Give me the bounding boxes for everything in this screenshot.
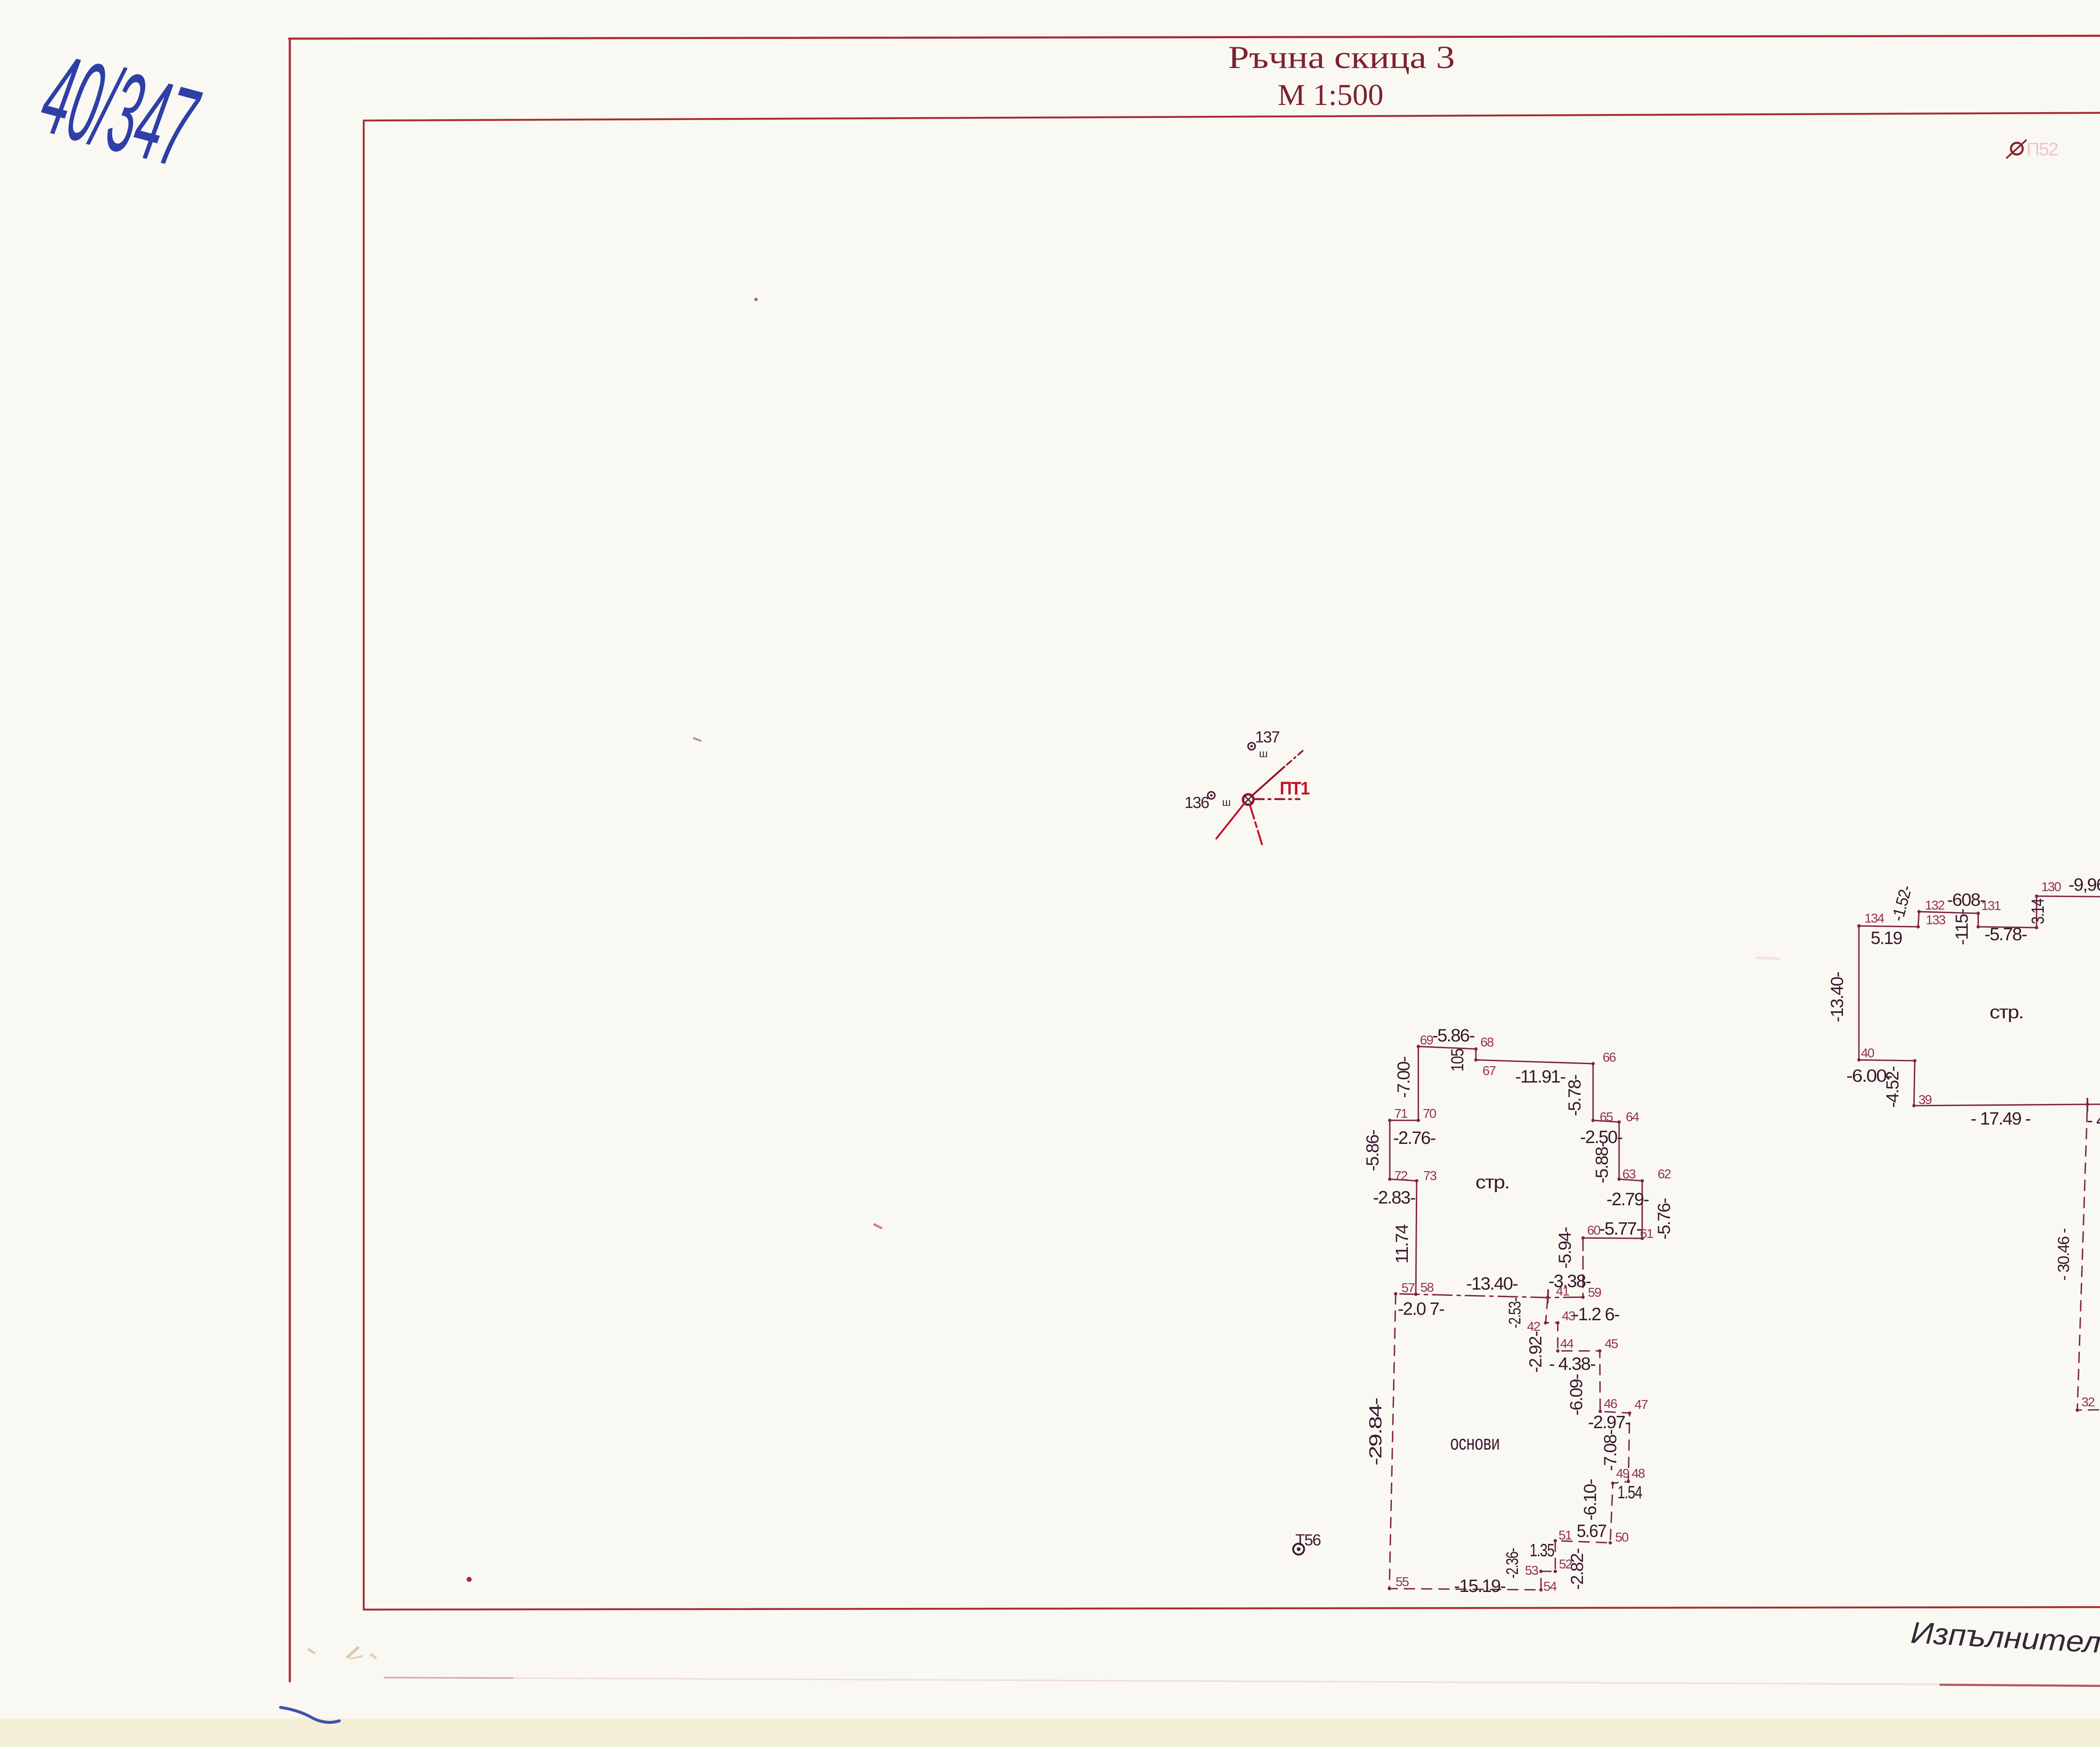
svg-text:-1.2 6-: -1.2 6- xyxy=(1573,1304,1620,1324)
svg-text:3.14: 3.14 xyxy=(2028,899,2047,924)
svg-text:-608-: -608- xyxy=(1947,890,1985,910)
svg-text:-5.88-: -5.88- xyxy=(1592,1142,1612,1183)
svg-text:-4.52-: -4.52- xyxy=(1882,1066,1902,1108)
svg-text:42: 42 xyxy=(1527,1319,1540,1334)
svg-text:130: 130 xyxy=(2041,879,2061,894)
svg-text:5.67: 5.67 xyxy=(1577,1521,1606,1541)
svg-text:-5.78-: -5.78- xyxy=(1984,924,2027,944)
svg-text:стр.: стр. xyxy=(1990,1002,2023,1023)
svg-text:Т56: Т56 xyxy=(1295,1531,1320,1549)
svg-text:69: 69 xyxy=(1420,1033,1433,1047)
svg-text:64: 64 xyxy=(1626,1109,1639,1124)
svg-text:136: 136 xyxy=(1184,794,1209,812)
svg-text:-2.36-: -2.36- xyxy=(1503,1548,1522,1579)
svg-text:53: 53 xyxy=(1525,1563,1538,1578)
svg-text:51: 51 xyxy=(1559,1528,1572,1542)
svg-text:61: 61 xyxy=(1640,1226,1653,1241)
svg-text:5.19: 5.19 xyxy=(1871,928,1902,948)
svg-text:132: 132 xyxy=(1925,898,1944,913)
svg-text:-5.86-: -5.86- xyxy=(1432,1025,1475,1046)
svg-text:-6.10-: -6.10- xyxy=(1580,1479,1600,1521)
svg-text:-13.40-: -13.40- xyxy=(1827,972,1847,1022)
svg-text:- 4.59-: - 4.59- xyxy=(2087,1110,2100,1130)
svg-text:-7.00-: -7.00- xyxy=(1394,1057,1413,1098)
svg-text:-5.94-: -5.94- xyxy=(1555,1227,1575,1269)
svg-text:стр.: стр. xyxy=(1475,1172,1509,1193)
svg-text:62: 62 xyxy=(1658,1167,1671,1181)
svg-text:- 4.38-: - 4.38- xyxy=(1549,1354,1596,1374)
svg-text:52: 52 xyxy=(1559,1557,1572,1571)
svg-text:54: 54 xyxy=(1543,1579,1557,1594)
svg-text:137: 137 xyxy=(1255,729,1279,746)
svg-text:основи: основи xyxy=(1450,1432,1500,1454)
svg-text:-2.83-: -2.83- xyxy=(1373,1188,1415,1208)
svg-text:-2.97-: -2.97- xyxy=(1588,1412,1630,1432)
svg-text:11.74: 11.74 xyxy=(1392,1224,1412,1264)
svg-text:М 1:500: М 1:500 xyxy=(1278,78,1383,112)
svg-text:ш: ш xyxy=(1259,747,1268,760)
svg-text:-115-: -115- xyxy=(1952,909,1971,945)
svg-text:-29.84-: -29.84- xyxy=(1365,1398,1385,1466)
svg-text:-2.53-: -2.53- xyxy=(1506,1298,1524,1328)
svg-text:-7.08-: -7.08- xyxy=(1600,1429,1620,1471)
svg-text:-5.77-: -5.77- xyxy=(1599,1219,1642,1239)
svg-text:-2.76-: -2.76- xyxy=(1393,1128,1436,1148)
svg-text:59: 59 xyxy=(1588,1285,1601,1300)
svg-text:45: 45 xyxy=(1605,1336,1618,1351)
svg-text:-5.78-: -5.78- xyxy=(1564,1075,1584,1116)
svg-text:-5.76-: -5.76- xyxy=(1654,1198,1674,1240)
svg-text:73: 73 xyxy=(1423,1168,1436,1183)
svg-text:1.35: 1.35 xyxy=(1530,1540,1554,1560)
svg-text:70: 70 xyxy=(1423,1106,1436,1121)
svg-text:- 30.46 -: - 30.46 - xyxy=(2055,1229,2073,1281)
svg-text:63: 63 xyxy=(1622,1167,1635,1181)
svg-text:67: 67 xyxy=(1483,1063,1496,1078)
svg-text:50: 50 xyxy=(1615,1530,1629,1544)
svg-text:-2.92-: -2.92- xyxy=(1525,1331,1545,1373)
svg-text:131: 131 xyxy=(1981,898,2000,913)
svg-text:65: 65 xyxy=(1600,1109,1613,1124)
svg-text:46: 46 xyxy=(1604,1396,1617,1411)
svg-text:71: 71 xyxy=(1394,1106,1407,1121)
svg-text:Ръчна скица 3: Ръчна скица 3 xyxy=(1228,40,1455,75)
svg-text:72: 72 xyxy=(1394,1168,1407,1183)
svg-text:133: 133 xyxy=(1926,913,1945,927)
svg-text:-3.38-: -3.38- xyxy=(1549,1271,1591,1291)
svg-text:-2.79-: -2.79- xyxy=(1606,1189,1649,1209)
svg-text:1.54: 1.54 xyxy=(1617,1482,1642,1503)
svg-text:55: 55 xyxy=(1396,1574,1409,1589)
svg-text:47: 47 xyxy=(1635,1397,1648,1412)
svg-text:-5.86-: -5.86- xyxy=(1362,1130,1382,1171)
svg-text:44: 44 xyxy=(1560,1336,1574,1351)
svg-text:П52: П52 xyxy=(2026,139,2058,160)
svg-text:105: 105 xyxy=(1447,1049,1467,1072)
svg-text:58: 58 xyxy=(1420,1280,1433,1295)
svg-text:-15.19-: -15.19- xyxy=(1454,1576,1506,1596)
svg-text:32: 32 xyxy=(2082,1395,2095,1409)
svg-text:39: 39 xyxy=(1919,1092,1932,1107)
svg-text:ш: ш xyxy=(1222,796,1231,808)
svg-text:-2.0 7-: -2.0 7- xyxy=(1398,1299,1444,1319)
svg-text:-13.40-: -13.40- xyxy=(1466,1274,1518,1294)
svg-text:60: 60 xyxy=(1587,1223,1601,1238)
svg-text:49: 49 xyxy=(1616,1466,1629,1481)
svg-text:134: 134 xyxy=(1864,911,1884,926)
svg-text:66: 66 xyxy=(1603,1050,1616,1065)
svg-text:ПТ1: ПТ1 xyxy=(1280,778,1310,799)
svg-text:-9,96-: -9,96- xyxy=(2068,875,2100,895)
svg-text:41: 41 xyxy=(1556,1284,1569,1298)
svg-text:57: 57 xyxy=(1402,1280,1415,1295)
svg-text:68: 68 xyxy=(1480,1035,1494,1049)
svg-text:40: 40 xyxy=(1861,1046,1874,1060)
svg-text:-11.91-: -11.91- xyxy=(1515,1067,1565,1087)
svg-text:48: 48 xyxy=(1632,1466,1645,1481)
svg-text:- 17.49 -: - 17.49 - xyxy=(1971,1109,2031,1129)
svg-text:-6.09-: -6.09- xyxy=(1566,1374,1586,1416)
